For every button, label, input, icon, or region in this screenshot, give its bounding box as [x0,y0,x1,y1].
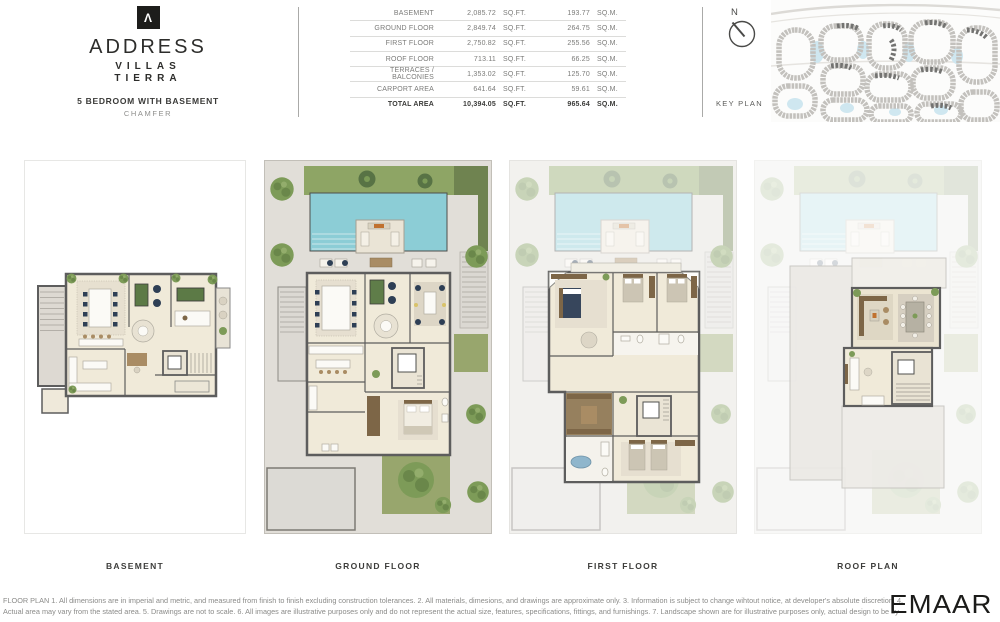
row-sqft-unit: SQ.FT. [496,71,536,78]
caption-first-floor: FIRST FLOOR [509,561,737,571]
table-row: FIRST FLOOR 2,750.82 SQ.FT. 255.56 SQ.M. [350,37,626,52]
first-floorplan [509,160,737,534]
table-row-total: TOTAL AREA 10,394.05 SQ.FT. 965.64 SQ.M. [350,98,626,112]
row-sqft: 2,849.74 [434,25,496,32]
row-sqm: 264.75 [536,25,590,32]
basement-floorplan-image [25,161,245,533]
row-sqft: 1,353.02 [434,71,496,78]
row-sqm-unit: SQ.M. [590,10,624,17]
ground-house [307,273,450,455]
row-sqft-unit: SQ.FT. [496,86,536,93]
row-label: ROOF FLOOR [350,56,434,63]
table-row: TERRACES / BALCONIES 1,353.02 SQ.FT. 125… [350,67,626,82]
row-label: CARPORT AREA [350,86,434,93]
brand-subname-line1: VILLAS [55,61,241,73]
row-label: FIRST FLOOR [350,40,434,47]
caption-ground-floor: GROUND FLOOR [264,561,492,571]
ground-floorplan-image [264,160,492,534]
row-sqft-unit: SQ.FT. [496,40,536,47]
row-sqm-unit: SQ.M. [590,86,624,93]
caption-basement: BASEMENT [21,561,249,571]
row-sqm-unit: SQ.M. [590,40,624,47]
row-sqm-unit: SQ.M. [590,71,624,78]
logo-glyph: Λ [144,12,152,24]
first-floorplan-image [509,160,737,534]
area-table: BASEMENT 2,085.72 SQ.FT. 193.77 SQ.M. GR… [350,6,626,112]
unit-type-title: 5 BEDROOM WITH BASEMENT [55,96,241,106]
table-row: ROOF FLOOR 713.11 SQ.FT. 66.25 SQ.M. [350,52,626,67]
row-sqm-unit: SQ.M. [590,101,624,108]
row-sqm: 193.77 [536,10,590,17]
row-sqft-unit: SQ.FT. [496,101,536,108]
header-divider-left [298,7,299,117]
variant-title: CHAMFER [55,109,241,118]
roof-floorplan-image [754,160,982,534]
row-sqm-unit: SQ.M. [590,56,624,63]
keyplan-title: KEY PLAN [716,99,763,108]
brand-block: Λ ADDRESS VILLAS TIERRA 5 BEDROOM WITH B… [55,6,241,118]
table-row: CARPORT AREA 641.64 SQ.FT. 59.61 SQ.M. [350,82,626,97]
roof-family-room [844,348,932,406]
row-sqft: 641.64 [434,86,496,93]
brand-subname-line2: TIERRA [55,73,241,85]
table-row: BASEMENT 2,085.72 SQ.FT. 193.77 SQ.M. [350,6,626,21]
disclaimer-text: FLOOR PLAN 1. All dimensions are in impe… [3,595,905,622]
header-divider-right [702,7,703,117]
row-sqft-unit: SQ.FT. [496,25,536,32]
row-sqm-unit: SQ.M. [590,25,624,32]
brand-subname: VILLAS TIERRA [55,61,241,85]
roof-floorplan [754,160,982,534]
row-sqft: 713.11 [434,56,496,63]
caption-roof-plan: ROOF PLAN [754,561,982,571]
row-label: BASEMENT [350,10,434,17]
row-label: GROUND FLOOR [350,25,434,32]
row-sqm: 125.70 [536,71,590,78]
floorplan-sheet: Λ ADDRESS VILLAS TIERRA 5 BEDROOM WITH B… [0,0,1000,622]
north-label: N [731,7,738,18]
row-label: TOTAL AREA [350,101,434,108]
north-compass-icon: N [711,3,763,59]
row-sqm: 66.25 [536,56,590,63]
brand-name: ADDRESS [55,36,241,59]
row-label: TERRACES / BALCONIES [350,67,434,81]
row-sqm: 965.64 [536,101,590,108]
row-sqm: 255.56 [536,40,590,47]
row-sqft-unit: SQ.FT. [496,56,536,63]
row-sqm: 59.61 [536,86,590,93]
row-sqft: 2,085.72 [434,10,496,17]
row-sqft: 2,750.82 [434,40,496,47]
address-caret-icon: Λ [137,6,160,29]
row-sqft: 10,394.05 [434,101,496,108]
roof-terrace [852,288,940,348]
basement-floorplan [24,160,246,534]
ground-floorplan [264,160,492,534]
row-sqft-unit: SQ.FT. [496,10,536,17]
keyplan-map [771,0,1000,122]
table-row: GROUND FLOOR 2,849.74 SQ.FT. 264.75 SQ.M… [350,21,626,36]
first-floor-house [549,263,699,482]
emaar-logo: EMAAR [889,589,992,620]
